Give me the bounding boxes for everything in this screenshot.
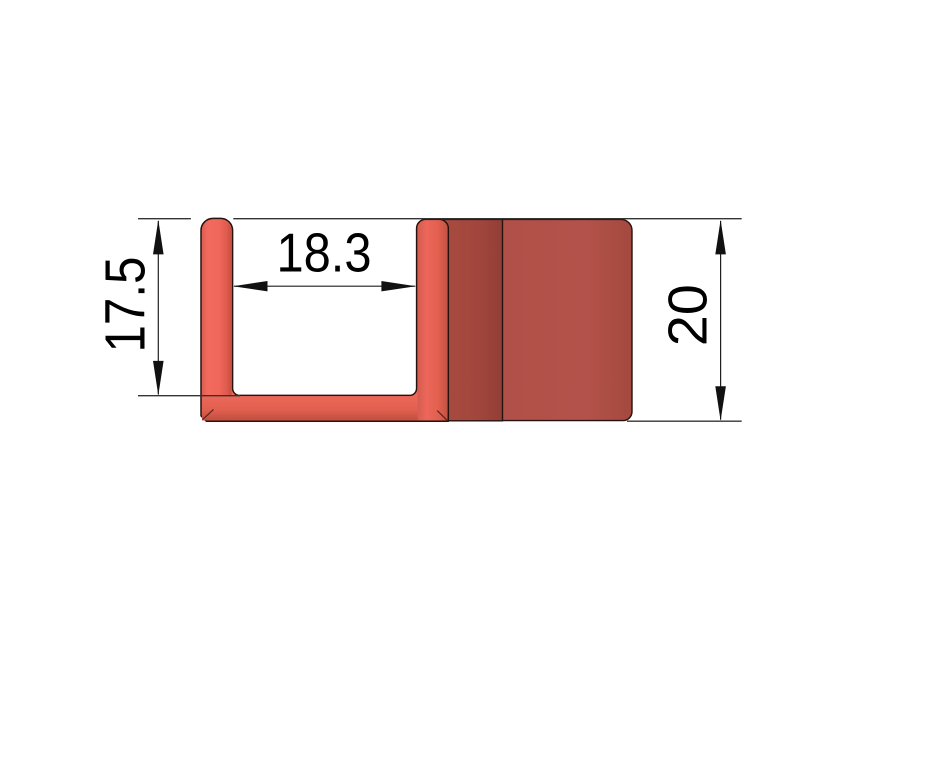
svg-text:18.3: 18.3 bbox=[277, 222, 372, 284]
svg-text:20: 20 bbox=[657, 284, 719, 346]
svg-text:17.5: 17.5 bbox=[94, 257, 158, 353]
